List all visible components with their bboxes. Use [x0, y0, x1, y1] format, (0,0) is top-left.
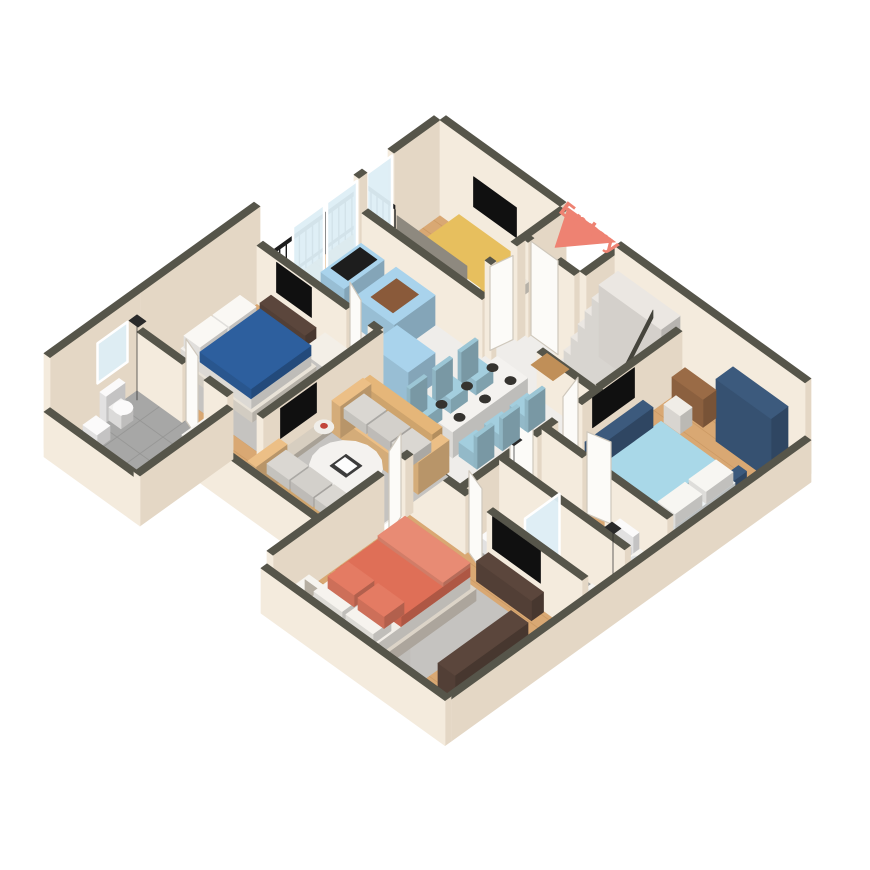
- side-table-1-decor: [321, 423, 328, 428]
- place-setting-2: [461, 382, 472, 390]
- bathroom-right-door-2: [587, 432, 611, 524]
- place-setting-5: [479, 395, 490, 403]
- floorplan-image: Entry: [0, 0, 870, 870]
- toilet-left-bowl: [113, 401, 133, 415]
- bathroom-left-door: [186, 339, 198, 438]
- place-setting-3: [436, 400, 447, 408]
- floorplan-canvas: Entry: [0, 0, 870, 870]
- bedroom-top-door: [490, 256, 513, 351]
- place-setting-6: [454, 413, 465, 421]
- entry-door: [531, 241, 558, 355]
- place-setting-1: [487, 364, 498, 372]
- place-setting-4: [505, 377, 516, 385]
- bathroom-master-door: [469, 471, 482, 571]
